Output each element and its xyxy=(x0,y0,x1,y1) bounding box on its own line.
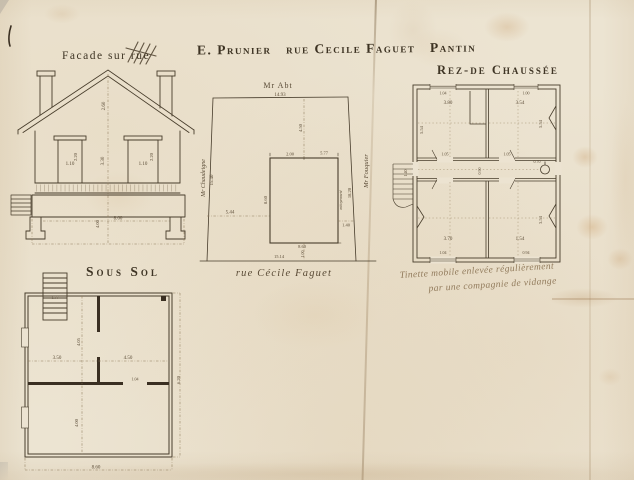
rdc-dim-door-right: 1.05 xyxy=(504,152,511,157)
rdc-outer-walls xyxy=(413,85,560,262)
scanned-plan-sheet: E. Prunier rue Cecile Faguet Pantin Faca… xyxy=(0,0,634,480)
facade-dim-lines xyxy=(32,74,184,244)
ground-floor-drawing: 3.80 3.54 5.54 5.54 3.70 1.54 3.54 1.05 … xyxy=(390,78,602,270)
facade-dim-base-height: 4.00 xyxy=(95,219,100,228)
basement-dim-door: 1.04 xyxy=(132,377,139,382)
horizontal-crease xyxy=(552,298,634,300)
paper-stain xyxy=(44,4,80,24)
rdc-dim-room-tr-h: 5.54 xyxy=(538,119,543,128)
facade-chimney-right xyxy=(157,71,175,116)
site-house-top-right-dim: 5.77 xyxy=(320,151,329,156)
site-front-setback-dim: 5.44 xyxy=(226,211,235,216)
rdc-dim-text: 3.80 3.54 5.54 5.54 3.70 1.54 3.54 1.05 … xyxy=(403,91,543,256)
basement-interior-walls xyxy=(28,296,169,385)
ground-floor-label: Rez-de Chaussée xyxy=(437,63,559,78)
site-house-bottom-dim: 8.60 xyxy=(298,244,307,249)
site-court-depth-dim: 4.50 xyxy=(298,123,303,132)
ink-mark xyxy=(4,24,16,48)
facade-walls xyxy=(32,131,185,217)
basement-dim-lines xyxy=(25,293,180,470)
basement-dim-depth-front: 4.05 xyxy=(76,337,81,346)
scan-corner-top-left xyxy=(0,0,9,14)
site-street-dim: 15.14 xyxy=(274,254,285,259)
facade-dim-window-right-height: 2.20 xyxy=(149,152,154,161)
facade-dim-window-right-width: 1.10 xyxy=(139,162,148,167)
sheet-title: E. Prunier rue Cecile Faguet Pantin xyxy=(197,40,476,59)
facade-window-right xyxy=(124,136,162,183)
site-neighbor-left: Mr Chaudeigne xyxy=(201,159,207,198)
site-plan-text: Mr Abt 14.93 4.50 5.44 1.40 2.00 5.77 8.… xyxy=(201,81,370,279)
facade-dim-roof-height: 2.60 xyxy=(102,101,107,110)
rdc-dim-room-br-w: 1.54 xyxy=(516,237,525,242)
rdc-dim-room-tr-w: 3.54 xyxy=(516,101,525,106)
facade-footing-right xyxy=(166,217,185,239)
facade-chimney-left xyxy=(37,71,55,115)
rdc-dim-room-bl-w: 3.70 xyxy=(444,237,453,242)
basement-dim-room-right: 4.50 xyxy=(124,356,133,361)
basement-dim-room-left: 3.50 xyxy=(53,356,62,361)
site-street-label: rue Cécile Faguet xyxy=(236,268,332,279)
facade-entry-stairs xyxy=(11,195,31,215)
basement-dim-total-width: 8.60 xyxy=(92,466,101,471)
site-party-wall-dim: 18.20 xyxy=(347,187,352,198)
facade-drawing: 2.60 3.30 1.10 2.20 1.10 2.20 8.60 4.00 xyxy=(10,58,205,253)
rdc-dim-door-left: 1.05 xyxy=(442,152,449,157)
rdc-fireplaces xyxy=(417,106,556,228)
paper-stain xyxy=(610,100,634,260)
rdc-dim-win-top-r: 1.00 xyxy=(523,91,530,96)
rdc-dim-win-bot-l: 1.04 xyxy=(440,250,447,255)
scan-corner-bottom-left xyxy=(0,462,8,480)
site-house-footprint xyxy=(270,158,338,243)
rdc-dim-win-bot-r: 0.94 xyxy=(523,250,530,255)
rdc-dim-guides xyxy=(418,91,555,256)
rdc-dim-hall-w: 0.90 xyxy=(477,168,482,175)
paper-stain xyxy=(484,12,530,42)
basement-pillar xyxy=(161,296,166,301)
facade-dim-window-left-height: 2.20 xyxy=(73,152,78,161)
rdc-dim-win-top-l: 1.04 xyxy=(440,91,447,96)
site-house-front-dim: 1.00 xyxy=(300,251,305,258)
site-neighbor-right: Mr Fouquier xyxy=(363,154,370,189)
basement-dim-depth-back: 4.00 xyxy=(74,418,79,427)
rdc-dim-wc: 0.70 xyxy=(534,159,541,164)
site-house-top-left-dim: 2.00 xyxy=(286,152,295,157)
site-house-left-dim: 8.60 xyxy=(263,195,268,204)
site-tick-marks xyxy=(270,153,341,243)
facade-dim-text: 2.60 3.30 1.10 2.20 1.10 2.20 8.60 4.00 xyxy=(66,101,154,228)
rdc-dim-stair-w: 1.40 xyxy=(403,170,408,177)
paper-stain xyxy=(598,368,622,386)
rdc-dim-room-tl-h: 5.54 xyxy=(419,125,424,134)
rdc-dim-room-br-h: 3.54 xyxy=(538,215,543,224)
facade-footing-left xyxy=(26,217,45,239)
site-side-gap-dim: 1.40 xyxy=(342,223,351,228)
basement-dim-total-depth: 6.20 xyxy=(176,375,181,384)
rdc-openings xyxy=(412,84,562,264)
site-dim-lines xyxy=(207,99,355,260)
facade-dim-window-left-width: 1.10 xyxy=(66,162,75,167)
rdc-wc-circle xyxy=(541,162,550,175)
basement-dim-stairs: 1.77 xyxy=(52,295,59,300)
facade-dim-base-width: 8.60 xyxy=(114,217,123,222)
site-neighbor-top: Mr Abt xyxy=(263,81,292,90)
site-plot-outline xyxy=(200,97,376,261)
rdc-dim-room-tl-w: 3.80 xyxy=(444,101,453,106)
site-party-wall-label: mitoyenneté xyxy=(338,190,343,210)
paper-stain xyxy=(250,280,380,350)
facade-window-left xyxy=(54,136,86,183)
basement-drawing: 3.50 4.50 4.05 4.00 8.60 6.20 1.77 1.04 xyxy=(18,258,198,480)
facade-dim-story-height: 3.30 xyxy=(101,156,106,165)
site-plan-drawing: Mr Abt 14.93 4.50 5.44 1.40 2.00 5.77 8.… xyxy=(200,73,392,285)
site-neighbor-top-dim: 14.93 xyxy=(274,93,286,98)
site-neighbor-left-dim: 15.40 xyxy=(210,174,215,185)
